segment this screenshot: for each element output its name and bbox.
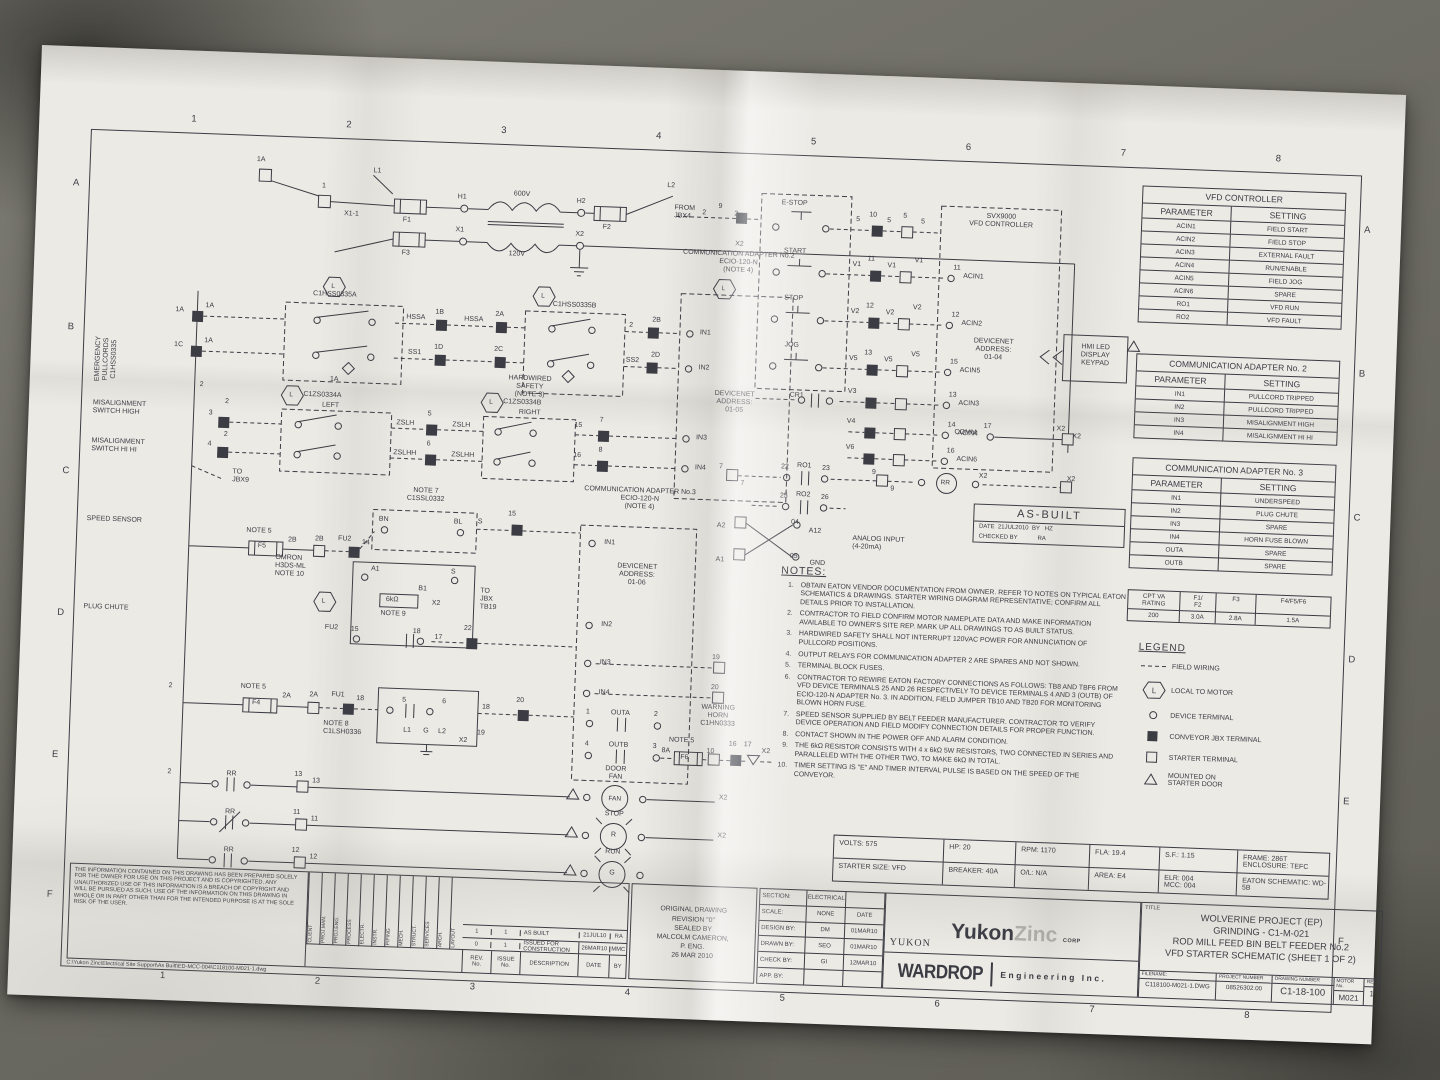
schematic-label: A1 [371,565,380,573]
schematic-label: V3 [848,388,857,396]
schematic-label: 2B [288,536,297,544]
schematic-label: C1HSS0335A [313,290,357,300]
revision-block: THE INFORMATION CONTAINED ON THIS DRAWIN… [67,863,630,979]
schematic-label: FAN [608,795,621,803]
schematic-label: 1 [322,182,326,190]
schematic-label: OUTA [611,709,630,718]
schematic-label: 7 [740,480,744,488]
schematic-label: V1 [915,257,924,265]
legend-item: STARTER TERMINAL [1134,751,1324,770]
schematic-label: COMM [954,429,976,438]
schematic-label: IN3 [696,434,707,442]
schematic-label: 5 [903,213,907,221]
schematic-label: FROM JBX4 [674,204,695,221]
device-terminal-icon [1136,709,1170,722]
schematic-label: RR [225,808,235,816]
schematic-label: 5 [856,216,860,224]
schematic-label: WARNING HORN C1HN0333 [700,704,736,729]
schematic-label: L1 [373,167,381,175]
schematic-label: 4 [207,440,211,448]
schematic-label: 2 [199,381,203,389]
schematic-label: C [1353,513,1360,524]
schematic-label: NOTE 7 C1SSL0332 [407,487,445,504]
schematic-label: 2A [495,311,504,319]
schematic-label: H1 [458,193,467,201]
schematic-label: 1C [174,341,183,349]
schematic-label: F2 [603,224,611,232]
schematic-label: COMMUNICATION ADAPTER No.2 ECIO-120-N (N… [682,249,794,277]
schematic-label: NOTE 5 [669,736,695,745]
schematic-label: 5 [428,410,432,418]
schematic-label: L [331,283,335,291]
schematic-label: 11 [293,809,301,817]
schematic-label: NOTE 9 [380,610,406,619]
schematic-label: 22 [464,625,472,633]
schematic-label: 2B [652,317,661,325]
comm-adapter-3-table: COMMUNICATION ADAPTER No. 3 PARAMETER SE… [1129,457,1337,575]
starter-terminal-icon [1134,751,1168,764]
schematic-label: X2 [432,600,441,608]
schematic-label: X2 [1056,425,1065,433]
title-label: TITLE [1145,905,1160,912]
schematic-label: DEVICENET ADDRESS: 01-04 [973,337,1014,363]
revision-matrix: CLIENTPROJ.MAN.PROJ.ENG.PROCESSELECTR.IN… [305,872,628,978]
schematic-label: 17 [744,741,752,749]
schematic-label: X1-1 [344,210,359,219]
schematic-label: F5 [258,542,266,550]
schematic-label: D [57,608,64,619]
schematic-label: 19 [477,729,485,737]
schematic-label: 6 [426,440,430,448]
schematic-label: 3 [208,409,212,417]
schematic-label: G [609,869,615,877]
schematic-label: ACIN6 [956,456,977,465]
schematic-label: START [784,247,807,256]
schematic-label: 12 [291,847,299,855]
schematic-label: IN4 [598,689,609,697]
schematic-label: H2 [576,198,585,206]
schematic-label: ZSLH [396,419,414,428]
schematic-label: 10 [706,748,714,756]
schematic-label: X2 [575,231,584,239]
schematic-label: L [721,285,725,293]
schematic-label: JOG [784,341,799,350]
schematic-label: 19 [712,654,720,662]
project-number-cell: PROJECT NUMBER 08526302.00 [1216,974,1273,1002]
schematic-label: 15 [351,626,359,634]
schematic-label: 16 [729,741,737,749]
schematic-label: 600V [514,190,531,199]
schematic-label: 4 [624,988,630,999]
schematic-label: 2 [346,120,352,131]
schematic-label: ZSLH [452,421,470,430]
schematic-label: F3 [401,249,409,257]
schematic-label: 15 [950,358,958,366]
schematic-label: 13 [294,771,302,779]
schematic-label: F6 [680,754,688,762]
notes-section: NOTES: OBTAIN EATON VENDOR DOCUMENTATION… [773,564,1127,794]
schematic-label: V1 [852,261,861,269]
legend-item: MOUNTED ON STARTER DOOR [1134,772,1324,793]
schematic-label: L1 [403,727,411,735]
logo-divider [990,962,992,986]
schematic-label: L [289,391,293,399]
schematic-label: STOP [605,810,624,819]
schematic-label: 1 [586,708,590,716]
schematic-label: 2 [702,209,706,217]
schematic-label: 1A [330,376,339,384]
schematic-label: 12 [309,853,317,861]
schematic-label: X2 [735,241,744,249]
legend-item: FIELD WIRING [1138,661,1328,678]
schematic-label: 7 [1121,149,1127,160]
photo-of-schematic: ABCDEFABCDEF1234567812345678EMERGENCY PU… [0,0,1440,1080]
schematic-label: 26 [821,494,829,502]
legend-item: DEVICE TERMINAL [1136,709,1326,728]
schematic-label: B [67,322,74,333]
schematic-paper-sheet: ABCDEFABCDEF1234567812345678EMERGENCY PU… [7,45,1406,1044]
schematic-label: E-STOP [782,199,808,208]
schematic-label: 1A [175,306,184,314]
schematic-label: 18 [482,704,490,712]
schematic-label: 17 [434,634,442,642]
schematic-label: S [451,568,456,576]
schematic-label: 11 [311,815,319,823]
schematic-label: L [541,292,545,300]
drawing-title-block: TITLE WOLVERINE PROJECT (EP)GRINDING - C… [1138,902,1383,1007]
schematic-label: 13 [949,391,957,399]
schematic-label: ACIN5 [960,367,981,376]
schematic-label: NOTE 5 [240,683,266,692]
cpt-header-cell: F1/ F2 [1180,592,1217,612]
schematic-label: 2 [654,711,658,719]
schematic-label: V5 [911,351,920,359]
schematic-label: B [1359,369,1366,380]
section-row: APP. BY: [757,968,881,987]
legend: LEGEND FIELD WIRING L LOCAL TO MOTOR DEV… [1133,642,1328,802]
schematic-label: 2 [315,977,321,988]
schematic-label: A12 [809,527,822,535]
schematic-label: X2 [979,473,988,481]
local-to-motor-hex-icon: L [1137,680,1172,701]
schematic-label: 9 [890,485,894,493]
schematic-label: 8A [661,747,670,755]
cpt-value-cell: 3.0A [1180,611,1216,623]
schematic-label: NOTE 5 [246,527,272,536]
schematic-label: X2 [761,748,770,756]
schematic-label: SS2 [626,357,640,366]
schematic-label: 7 [599,417,603,425]
rev-cell: REV. 1 [1364,979,1380,1006]
schematic-label: 7 [1089,1005,1095,1016]
schematic-label: 6 [966,143,972,154]
as-built-stamp: AS-BUILT DATE 21JUL2010 BY HZ CHECKED BY… [972,503,1125,548]
schematic-label: 17 [983,423,991,431]
schematic-label: HARDWIRED SAFETY (NOTE 3) [508,374,552,400]
schematic-label: 5 [887,217,891,225]
schematic-label: V5 [884,356,893,364]
schematic-label: RR [940,479,950,487]
schematic-label: E [52,750,59,761]
schematic-label: 12 [952,312,960,320]
schematic-label: V2 [851,308,860,316]
field-wiring-icon [1138,661,1172,672]
schematic-label: 1B [435,309,444,317]
schematic-label: 2 [167,768,171,776]
schematic-label: C1ZS0334B [503,398,541,407]
schematic-label: 16 [947,447,955,455]
schematic-label: C1HSS0335B [553,301,597,311]
schematic-label: X2 [1067,476,1076,484]
schematic-label: FU2 [338,535,352,544]
schematic-label: STOP [784,294,803,303]
schematic-label: CR1 [790,392,804,401]
schematic-label: A [1364,226,1371,237]
cpt-header-cell: CPT VA RATING [1128,590,1181,611]
cpt-value-cell: 200 [1128,609,1180,622]
schematic-label: F [47,890,53,901]
schematic-label: 2D [651,352,660,360]
legend-item: CONVEYOR JBX TERMINAL [1135,730,1325,749]
schematic-label: HMI LED DISPLAY KEYPAD [1080,343,1110,368]
schematic-label: A1 [715,556,724,564]
wardrop-wordmark: WARDROP [897,959,983,985]
schematic-label: DEVICENET ADDRESS: 01-06 [617,562,658,588]
schematic-label: 1A [204,337,213,345]
schematic-label: A2 [717,522,726,530]
schematic-label: EMERGENCY PULLCORDS C1HSS0335 [94,336,120,382]
schematic-label: 2A [309,691,318,699]
schematic-label: PLUG CHUTE [83,603,128,613]
schematic-label: 120V [508,250,525,259]
schematic-label: OUTB [609,741,629,750]
schematic-label: RR [223,846,233,854]
schematic-label: V4 [847,418,856,426]
schematic-label: FU1 [331,691,345,700]
schematic-label: 1A [257,156,266,164]
starter-door-triangle-icon [1134,773,1168,786]
schematic-label: L2 [667,182,675,190]
schematic-label: R [611,831,616,839]
schematic-label: 1A [205,302,214,310]
schematic-label: 8 [1275,154,1281,165]
schematic-label: ZSLHH [451,451,474,460]
schematic-label: 1D [434,344,443,352]
schematic-label: 2 [734,210,738,218]
schematic-label: 10 [869,211,877,219]
schematic-label: OMRON H3DS-ML NOTE 10 [275,554,307,579]
schematic-label: S [478,518,483,526]
schematic-label: X1 [455,226,464,234]
vfd-controller-table: VFD CONTROLLER PARAMETER SETTING ACIN1FI… [1138,185,1347,329]
schematic-label: TO JBX9 [232,468,249,485]
schematic-label: F4 [252,699,260,707]
schematic-label: 20 [516,697,524,705]
schematic-label: ZSLHH [393,449,416,458]
schematic-label: V2 [913,304,922,312]
schematic-label: COMMUNICATION ADAPTER No.3 ECIO-120-N (N… [584,485,696,513]
schematic-label: RO2 [796,491,811,500]
schematic-label: 6 [934,999,940,1010]
schematic-label: ACIN2 [961,320,982,329]
schematic-label: 1 [191,115,197,126]
schematic-label: 18 [356,695,364,703]
schematic-label: RIGHT [519,409,541,418]
schematic-label: 4 [585,740,589,748]
schematic-label: 9 [718,203,722,211]
schematic-label: IN2 [601,621,612,629]
schematic-label: 23 [822,465,830,473]
schematic-label: HSSA [464,316,483,325]
schematic-label: 4 [656,132,662,143]
schematic-label: 13 [864,349,872,357]
schematic-label: NOTE 8 C1LSH0336 [323,720,362,737]
schematic-label: RUN [605,848,620,857]
schematic-label: 8 [1244,1011,1250,1022]
schematic-label: 1 [160,971,166,982]
schematic-label: SS1 [408,349,422,358]
schematic-label: 04 [791,519,799,527]
cpt-value-cell: 2.8A [1216,612,1256,624]
schematic-label: 14 [362,539,370,547]
yukon-zinc-logo: YUKON YukonZinc CORP [884,894,1140,962]
schematic-label: L2 [438,728,446,736]
schematic-label: DOOR FAN [605,765,627,782]
schematic-label: 2C [494,346,503,354]
yukon-word: YUKON [889,937,930,949]
section-block: SECTION:ELECTRICAL SCALE:NONEDATE DESIGN… [756,888,885,989]
schematic-label: 11 [953,265,961,273]
schematic-label: G [423,727,429,735]
schematic-label: 25 [780,492,788,500]
cpt-header-cell: F3 [1216,593,1257,613]
schematic-label: IN1 [604,539,615,547]
schematic-label: L [489,399,493,407]
conveyor-jbx-terminal-icon [1135,730,1169,743]
schematic-label: 9 [872,469,876,477]
schematic-label: 22 [781,463,789,471]
schematic-label: 3 [653,743,657,751]
schematic-label: IN3 [600,659,611,667]
schematic-label: V6 [846,444,855,452]
schematic-label: BL [454,518,463,526]
schematic-label: V1 [887,262,896,270]
schematic-label: 2 [168,682,172,690]
schematic-label: 3 [470,982,476,993]
drawing-number-cell: DRAWING NUMBER C1-18-100 [1272,976,1335,1004]
schematic-label: F1 [403,216,411,224]
schematic-label: IN1 [700,329,711,337]
schematic-label: 5 [811,137,817,148]
schematic-label: 5 [921,218,925,226]
schematic-label: RR [226,770,236,778]
schematic-label: TO JBX TB19 [480,587,498,612]
schematic-label: 15 [574,422,582,430]
schematic-label: X2 [1072,433,1081,441]
schematic-label: 11 [868,255,876,263]
schematic-label: 2 [225,398,229,406]
copyright-disclaimer: THE INFORMATION CONTAINED ON THIS DRAWIN… [68,864,309,967]
svg-text:L: L [1152,686,1157,695]
schematic-label: 15 [508,510,516,518]
schematic-label: 5 [402,697,406,705]
schematic-label: FU2 [325,624,339,633]
schematic-label: 13 [312,777,320,785]
schematic-label: E [1343,797,1350,808]
schematic-label: BN [379,516,389,524]
yukonzinc-wordmark: YukonZinc CORP [951,920,1082,949]
schematic-label: 5 [779,994,785,1005]
schematic-label: B1 [418,585,427,593]
schematic-label: 3 [501,126,507,137]
schematic-label: V5 [849,355,858,363]
schematic-label: 6 [442,698,446,706]
schematic-label: 16 [573,452,581,460]
original-drawing-box: ORIGINAL DRAWINGREVISION "0"SEALED BYMAL… [628,883,757,984]
schematic-label: X2 [719,794,728,802]
schematic-label: 6kΩ [386,596,399,605]
schematic-label: ACIN1 [963,273,984,282]
schematic-label: IN4 [695,464,706,472]
schematic-label: MISALIGNMENT SWITCH HI HI [91,437,145,455]
company-logos: YUKON YukonZinc CORP WARDROP Engineering… [882,892,1141,997]
motor-number-cell: MOTOR No. M021 [1334,978,1365,1005]
schematic-label: V2 [886,309,895,317]
schematic-label: 2A [282,692,291,700]
schematic-label: C [62,466,69,477]
legend-item: L LOCAL TO MOTOR [1137,680,1328,707]
schematic-label: L [322,598,326,606]
schematic-label: ACIN3 [958,400,979,409]
schematic-label: MISALIGNMENT SWITCH HIGH [92,399,146,417]
schematic-label: X2 [717,832,726,840]
schematic-label: ANALOG INPUT (4-20mA) [852,535,905,553]
comm-adapter-2-table: COMMUNICATION ADAPTER No. 2 PARAMETER SE… [1133,353,1340,445]
filename-cell: FILENAME: C118100-M021-1.DWG [1139,971,1217,1000]
schematic-label: SPEED SENSOR [87,515,143,525]
schematic-label: 7 [719,463,723,471]
schematic-label: 2 [629,322,633,330]
schematic-label: RO1 [797,462,812,471]
schematic-label: C1ZS0334A [303,391,341,400]
schematic-label: IN2 [698,364,709,372]
schematic-label: X2 [459,737,468,745]
schematic-label: 20 [711,684,719,692]
schematic-label: A [73,178,80,189]
schematic-label: D [1348,655,1355,666]
schematic-label: 12 [866,302,874,310]
schematic-label: 18 [413,628,421,636]
schematic-label: DEVICENET ADDRESS: 01-05 [714,390,755,416]
cpt-value-cell: 1.5A [1256,614,1330,628]
schematic-label: HSSA [406,314,425,323]
schematic-label: 05 [790,553,798,561]
schematic-label: 2B [315,535,324,543]
schematic-label: 8 [598,447,602,455]
schematic-label: LEFT [322,402,339,411]
wardrop-subtitle: Engineering Inc. [1000,970,1106,984]
schematic-label: 2 [224,431,228,439]
schematic-label: SVX9000 VFD CONTROLLER [969,212,1033,230]
